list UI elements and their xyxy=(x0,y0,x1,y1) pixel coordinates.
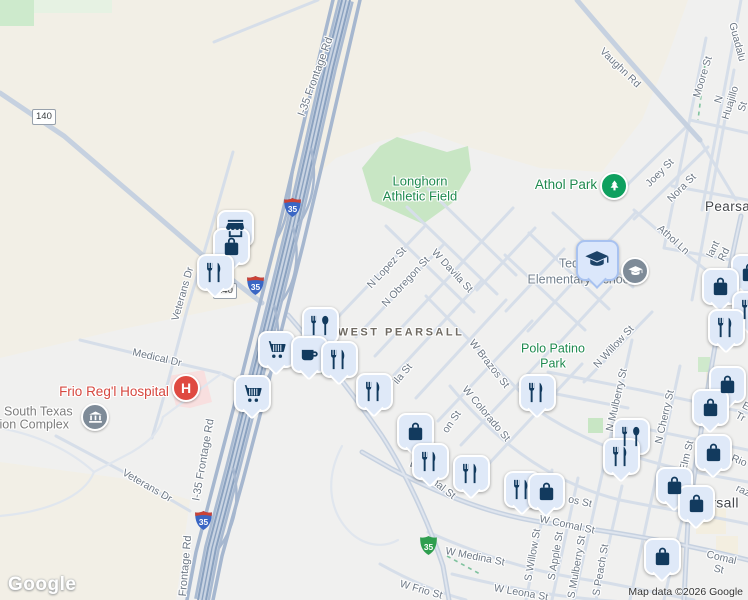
supermarket-marker[interactable] xyxy=(234,375,271,412)
restaurant-marker[interactable] xyxy=(356,373,393,410)
bag-icon xyxy=(651,545,674,568)
fork-knife-icon xyxy=(363,380,386,403)
restaurant-marker[interactable] xyxy=(321,341,358,378)
restaurant-marker[interactable] xyxy=(197,254,234,291)
bag-icon xyxy=(716,373,739,396)
bag-icon xyxy=(702,441,725,464)
fork-knife-icon xyxy=(511,478,534,501)
shopping-marker[interactable] xyxy=(695,434,732,471)
graduation-cap-icon xyxy=(583,246,611,274)
bag-icon xyxy=(535,480,558,503)
bag-icon xyxy=(685,492,708,515)
map-attribution: Map data ©2026 Google xyxy=(628,586,743,598)
fork-knife-icon xyxy=(715,316,738,339)
map-canvas[interactable]: I-35 Frontage RdVaughn RdGuadaluMoore St… xyxy=(0,0,748,600)
cup-icon xyxy=(298,343,321,366)
fork-knife-icon xyxy=(204,261,227,284)
bag-icon xyxy=(220,235,243,258)
fork-knife-icon xyxy=(328,348,351,371)
bag-icon xyxy=(404,420,427,443)
shopping-marker[interactable] xyxy=(644,538,681,575)
bag-icon xyxy=(709,275,732,298)
cart-icon xyxy=(265,338,288,361)
google-logo[interactable]: Google xyxy=(8,574,76,596)
fork-knife-icon xyxy=(460,462,483,485)
supermarket-marker[interactable] xyxy=(258,331,295,368)
fork-knife-icon xyxy=(739,298,748,321)
fork-knife-icon xyxy=(526,381,549,404)
restaurant-marker[interactable] xyxy=(412,443,449,480)
bag-icon xyxy=(699,396,722,419)
markers-layer xyxy=(0,0,748,600)
bag-icon xyxy=(663,474,686,497)
bag-icon xyxy=(738,261,748,284)
fork-spoon-icon xyxy=(309,314,332,337)
restaurant-marker[interactable] xyxy=(519,374,556,411)
cart-icon xyxy=(241,382,264,405)
fork-knife-icon xyxy=(610,445,633,468)
fork-knife-icon xyxy=(419,450,442,473)
restaurant-marker[interactable] xyxy=(453,455,490,492)
